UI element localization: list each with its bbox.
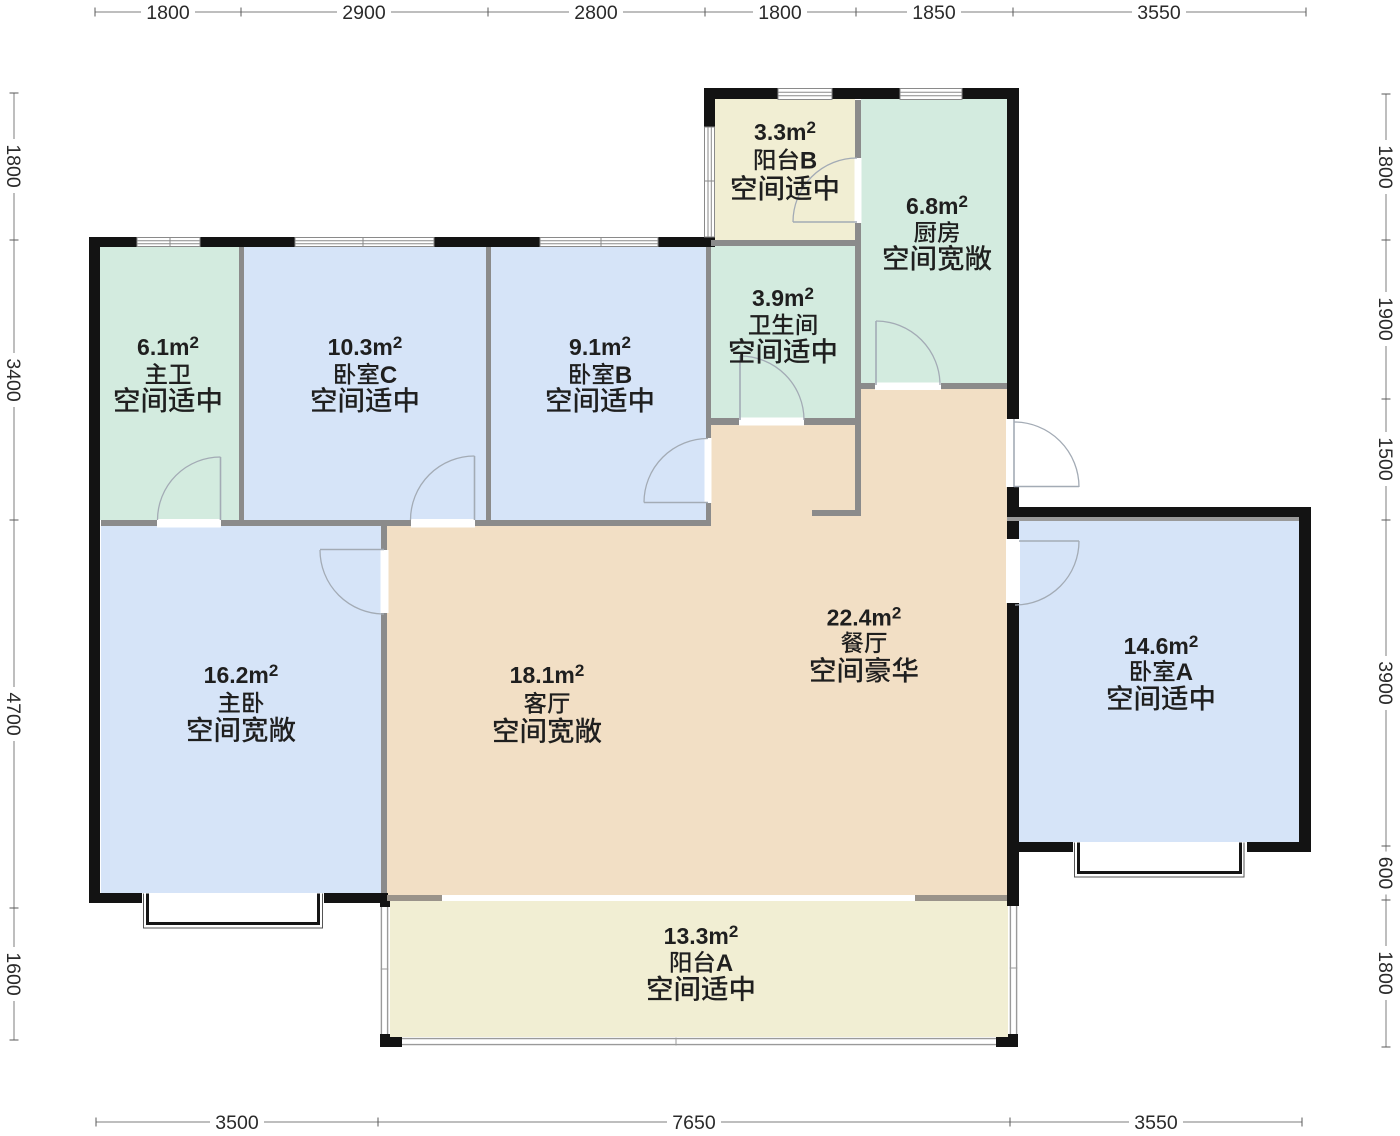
svg-text:1500: 1500 xyxy=(1374,437,1396,481)
svg-text:1800: 1800 xyxy=(2,144,24,188)
svg-text:10.3m2: 10.3m2 xyxy=(328,333,403,360)
svg-text:3550: 3550 xyxy=(1134,1112,1178,1134)
svg-text:B: B xyxy=(800,147,817,174)
svg-text:1800: 1800 xyxy=(758,2,802,24)
svg-text:1850: 1850 xyxy=(912,2,956,24)
svg-text:1900: 1900 xyxy=(1374,297,1396,341)
svg-text:A: A xyxy=(716,950,733,977)
svg-text:1800: 1800 xyxy=(1374,951,1396,995)
svg-text:14.6m2: 14.6m2 xyxy=(1124,632,1199,659)
svg-text:3400: 3400 xyxy=(2,358,24,402)
svg-text:3900: 3900 xyxy=(1374,661,1396,705)
svg-text:A: A xyxy=(1176,659,1193,686)
svg-text:1800: 1800 xyxy=(1374,145,1396,189)
svg-text:2900: 2900 xyxy=(342,2,386,24)
svg-text:B: B xyxy=(615,362,632,389)
svg-text:16.2m2: 16.2m2 xyxy=(204,661,279,688)
svg-text:7650: 7650 xyxy=(672,1112,716,1134)
svg-text:2800: 2800 xyxy=(574,2,618,24)
svg-text:1600: 1600 xyxy=(2,952,24,996)
svg-text:3500: 3500 xyxy=(215,1112,259,1134)
svg-text:3550: 3550 xyxy=(1137,2,1181,24)
svg-text:18.1m2: 18.1m2 xyxy=(510,661,585,688)
svg-text:1800: 1800 xyxy=(146,2,190,24)
svg-text:13.3m2: 13.3m2 xyxy=(664,922,739,949)
svg-text:4700: 4700 xyxy=(2,692,24,736)
svg-text:600: 600 xyxy=(1374,857,1396,890)
svg-text:C: C xyxy=(380,362,397,389)
svg-text:22.4m2: 22.4m2 xyxy=(827,603,902,630)
